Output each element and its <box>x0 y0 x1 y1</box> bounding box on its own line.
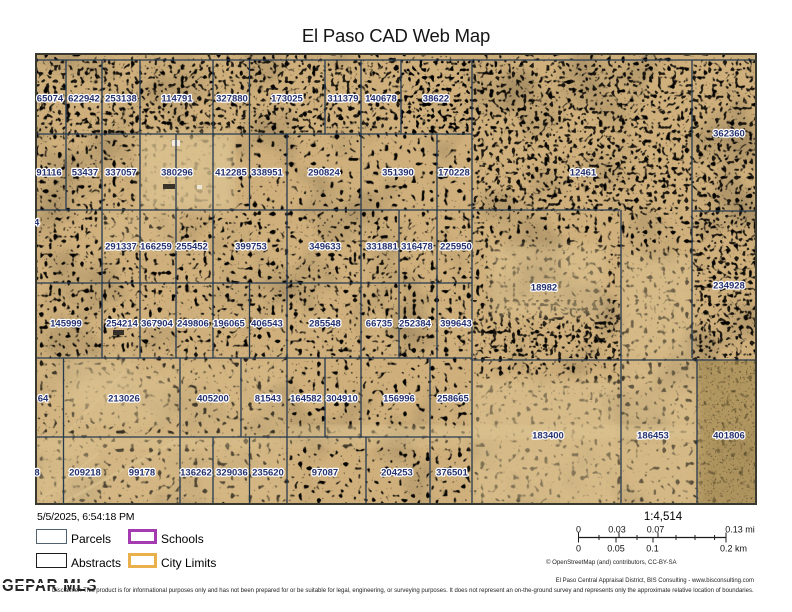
svg-text:136262: 136262 <box>180 468 212 479</box>
svg-text:399753: 399753 <box>235 242 267 253</box>
svg-text:53437: 53437 <box>72 168 98 179</box>
svg-text:0.05: 0.05 <box>607 544 625 554</box>
svg-text:327880: 327880 <box>216 94 248 105</box>
svg-text:99178: 99178 <box>129 468 155 479</box>
svg-text:166259: 166259 <box>140 242 172 253</box>
svg-text:170228: 170228 <box>438 168 470 179</box>
svg-text:291337: 291337 <box>105 242 137 253</box>
svg-text:338951: 338951 <box>251 168 283 179</box>
svg-text:401806: 401806 <box>713 431 745 442</box>
svg-text:0.13 mi: 0.13 mi <box>725 525 755 535</box>
svg-text:412285: 412285 <box>215 168 247 179</box>
svg-text:337057: 337057 <box>105 168 137 179</box>
svg-text:66735: 66735 <box>366 319 393 330</box>
svg-text:349633: 349633 <box>309 242 341 253</box>
svg-text:0.03: 0.03 <box>608 525 626 535</box>
svg-text:249806: 249806 <box>177 319 209 330</box>
svg-text:196065: 196065 <box>213 319 245 330</box>
svg-text:65074: 65074 <box>37 94 64 105</box>
svg-text:255452: 255452 <box>176 242 208 253</box>
svg-text:140678: 140678 <box>365 94 397 105</box>
svg-text:183400: 183400 <box>532 431 564 442</box>
svg-text:362360: 362360 <box>713 129 745 140</box>
svg-text:0.07: 0.07 <box>647 525 665 535</box>
svg-text:114791: 114791 <box>161 94 193 105</box>
svg-text:225950: 225950 <box>440 242 472 253</box>
svg-text:186453: 186453 <box>637 431 669 442</box>
svg-text:304910: 304910 <box>326 394 358 405</box>
svg-text:164582: 164582 <box>290 394 322 405</box>
svg-text:213026: 213026 <box>108 394 140 405</box>
svg-text:81543: 81543 <box>255 394 281 405</box>
svg-text:38622: 38622 <box>423 94 449 105</box>
svg-text:209218: 209218 <box>69 468 101 479</box>
svg-text:0.1: 0.1 <box>646 544 659 554</box>
svg-text:91116: 91116 <box>36 168 61 179</box>
svg-text:253138: 253138 <box>105 94 137 105</box>
svg-text:235620: 235620 <box>252 468 284 479</box>
svg-text:622942: 622942 <box>68 94 100 105</box>
svg-text:145999: 145999 <box>50 319 82 330</box>
svg-text:316478: 316478 <box>401 242 433 253</box>
svg-text:406543: 406543 <box>251 319 283 330</box>
svg-text:18982: 18982 <box>531 283 557 294</box>
svg-text:0: 0 <box>576 544 581 554</box>
svg-text:367904: 367904 <box>141 319 173 330</box>
svg-text:285548: 285548 <box>309 319 341 330</box>
svg-text:380296: 380296 <box>161 168 193 179</box>
svg-text:290824: 290824 <box>308 168 340 179</box>
svg-text:156996: 156996 <box>383 394 415 405</box>
svg-text:399643: 399643 <box>440 319 472 330</box>
svg-text:234928: 234928 <box>713 281 745 292</box>
svg-text:0.2 km: 0.2 km <box>720 544 747 554</box>
svg-text:254214: 254214 <box>106 319 138 330</box>
svg-text:173025: 173025 <box>271 94 303 105</box>
svg-text:331881: 331881 <box>366 242 398 253</box>
svg-text:97087: 97087 <box>312 468 338 479</box>
svg-text:204253: 204253 <box>381 468 413 479</box>
svg-text:351390: 351390 <box>382 168 414 179</box>
svg-text:376501: 376501 <box>436 468 468 479</box>
svg-text:64: 64 <box>38 394 49 405</box>
svg-text:329036: 329036 <box>216 468 248 479</box>
svg-text:405200: 405200 <box>197 394 229 405</box>
svg-text:0: 0 <box>576 525 581 535</box>
svg-text:311379: 311379 <box>327 94 358 105</box>
svg-text:258665: 258665 <box>437 394 469 405</box>
svg-text:252384: 252384 <box>399 319 431 330</box>
svg-text:12461: 12461 <box>570 168 597 179</box>
svg-text:94: 94 <box>35 218 40 229</box>
svg-text:8: 8 <box>35 468 40 479</box>
